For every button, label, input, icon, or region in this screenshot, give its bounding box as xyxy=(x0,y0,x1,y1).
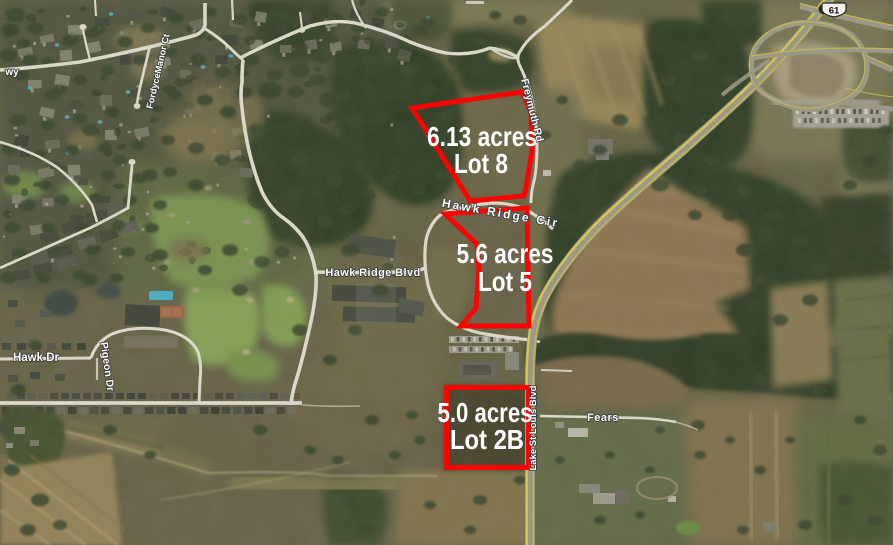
svg-text:5.6 acres: 5.6 acres xyxy=(457,238,554,269)
svg-text:Hawk Dr: Hawk Dr xyxy=(13,352,60,364)
svg-text:Hawk Ridge Blvd: Hawk Ridge Blvd xyxy=(325,267,420,279)
svg-text:Lot 2B: Lot 2B xyxy=(450,424,524,455)
svg-text:Lot 8: Lot 8 xyxy=(454,148,508,179)
svg-text:wy: wy xyxy=(4,67,19,78)
svg-text:Lot 5: Lot 5 xyxy=(478,266,532,297)
svg-text:61: 61 xyxy=(829,6,840,17)
svg-text:Fears: Fears xyxy=(587,412,619,424)
